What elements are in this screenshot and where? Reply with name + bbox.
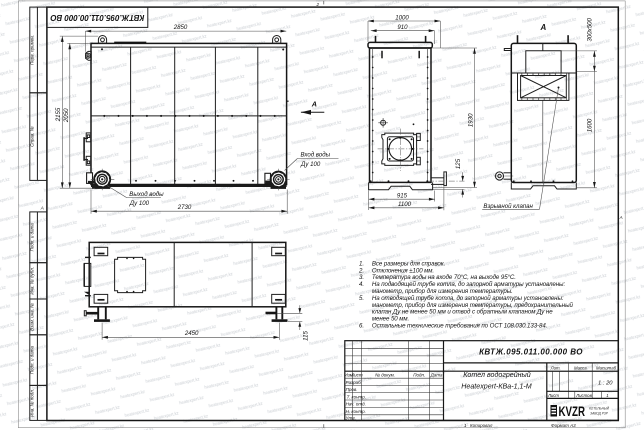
svg-text:№ докум.: № докум. <box>375 373 395 378</box>
svg-text:2850: 2850 <box>173 24 188 31</box>
svg-text:2730: 2730 <box>177 204 192 211</box>
svg-text:Н. контр.: Н. контр. <box>346 409 366 414</box>
svg-text:А: А <box>540 23 547 32</box>
svg-text:Ду 100: Ду 100 <box>300 161 321 168</box>
svg-text:Лист: Лист <box>547 393 559 398</box>
svg-text:2155: 2155 <box>55 107 62 122</box>
svg-text:Инв. № дубл.: Инв. № дубл. <box>30 267 35 295</box>
svg-text:6.: 6. <box>359 323 364 330</box>
svg-text:1100: 1100 <box>398 201 412 208</box>
svg-text:Формат А3: Формат А3 <box>551 423 576 428</box>
svg-text:Масштаб: Масштаб <box>596 366 617 371</box>
svg-text:1000: 1000 <box>395 15 409 22</box>
svg-text:Подп. и дата: Подп. и дата <box>30 223 35 252</box>
svg-text:Копировал: Копировал <box>470 423 493 428</box>
svg-text:КОТЕЛЬНЫЙ: КОТЕЛЬНЫЙ <box>589 407 610 411</box>
svg-text:Перв. примен.: Перв. примен. <box>30 35 35 65</box>
svg-text:Heatexpert-КВа-1,1-М: Heatexpert-КВа-1,1-М <box>461 383 532 391</box>
svg-text:Ду 100: Ду 100 <box>129 200 150 207</box>
svg-text:2450: 2450 <box>184 330 199 337</box>
svg-text:Вход воды: Вход воды <box>301 152 331 159</box>
svg-text:Пров.: Пров. <box>346 387 358 392</box>
svg-text:Выход воды: Выход воды <box>129 191 164 198</box>
svg-text:Лит.: Лит. <box>550 366 561 371</box>
svg-text:Подп.: Подп. <box>413 373 425 378</box>
svg-text:КВТЖ.095.011.00.000 ВО: КВТЖ.095.011.00.000 ВО <box>479 348 583 357</box>
svg-text:Лист: Лист <box>350 373 363 378</box>
svg-text:А: А <box>311 100 317 109</box>
svg-text:910: 910 <box>397 24 408 31</box>
svg-text:Взам. инв. №: Взам. инв. № <box>30 303 35 331</box>
svg-text:ЗАВОД РЗР: ЗАВОД РЗР <box>590 412 609 416</box>
svg-text:Т. контр.: Т. контр. <box>347 394 366 399</box>
svg-text:300х500: 300х500 <box>587 18 594 42</box>
svg-text:125: 125 <box>455 158 462 169</box>
svg-text:Подп. и дата: Подп. и дата <box>30 346 35 375</box>
svg-text:1600: 1600 <box>587 118 594 132</box>
svg-text:Нач. отд.: Нач. отд. <box>346 402 366 407</box>
svg-text:2: 2 <box>316 2 320 7</box>
svg-text:КВТЖ.095.011.00.000 ВО: КВТЖ.095.011.00.000 ВО <box>50 13 145 22</box>
svg-text:1930: 1930 <box>467 113 474 127</box>
svg-text:5.: 5. <box>359 295 364 302</box>
svg-text:Остальные технические требован: Остальные технические требования по ОСТ … <box>372 323 547 330</box>
svg-text:KVZR: KVZR <box>559 403 586 419</box>
svg-text:915: 915 <box>397 192 408 199</box>
svg-text:Дата: Дата <box>430 373 443 378</box>
svg-text:2050: 2050 <box>63 108 70 123</box>
svg-text:4.: 4. <box>359 281 364 288</box>
svg-text:Листов: Листов <box>575 393 592 398</box>
svg-text:Утв.: Утв. <box>346 415 356 420</box>
svg-text:Инв. № подл.: Инв. № подл. <box>30 389 35 417</box>
svg-text:Масса: Масса <box>574 366 587 371</box>
svg-text:Справ. №: Справ. № <box>30 126 35 147</box>
svg-text:Котел водогрейный: Котел водогрейный <box>463 371 531 379</box>
svg-text:А: А <box>619 215 623 220</box>
svg-text:А: А <box>40 206 44 211</box>
svg-text:1 : 20: 1 : 20 <box>598 381 613 387</box>
svg-text:115: 115 <box>302 331 309 341</box>
svg-text:Разраб.: Разраб. <box>346 380 362 385</box>
